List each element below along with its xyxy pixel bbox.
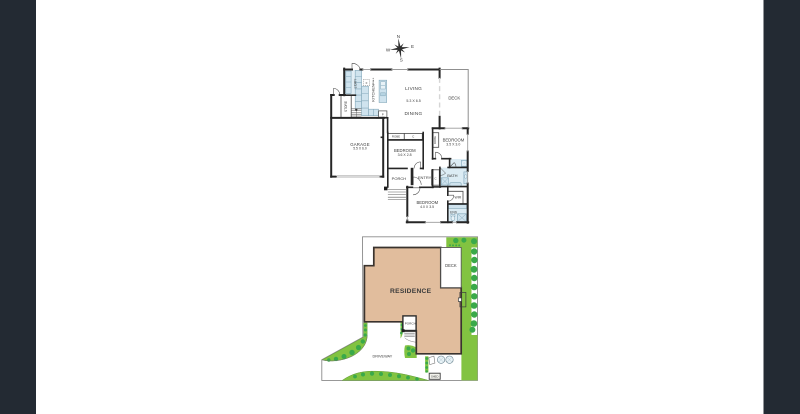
svg-text:WIR: WIR (455, 196, 462, 200)
svg-text:L'DRY: L'DRY (354, 78, 358, 88)
svg-text:PORCH: PORCH (405, 322, 416, 326)
svg-text:ENTRY: ENTRY (418, 175, 432, 180)
svg-text:SHED: SHED (431, 375, 439, 379)
svg-text:BATH: BATH (447, 173, 457, 178)
svg-text:4.0 X 3.5: 4.0 X 3.5 (420, 205, 434, 209)
svg-text:P: P (382, 112, 384, 116)
svg-text:ENS: ENS (450, 211, 458, 215)
svg-text:5.5 X 6.0: 5.5 X 6.0 (353, 147, 367, 151)
svg-text:3.5 X 3.0: 3.5 X 3.0 (446, 142, 460, 146)
svg-text:5.3 X 6.5: 5.3 X 6.5 (406, 99, 420, 103)
svg-text:S: S (400, 57, 403, 62)
svg-text:KITCHEN: KITCHEN (370, 84, 375, 102)
svg-text:DINING: DINING (404, 111, 422, 116)
svg-text:E: E (411, 44, 414, 49)
svg-text:DECK: DECK (445, 263, 457, 268)
svg-text:LIVING: LIVING (405, 86, 422, 91)
svg-text:ROBE: ROBE (433, 136, 437, 144)
svg-text:ROBE: ROBE (392, 135, 400, 139)
svg-text:RESIDENCE: RESIDENCE (390, 288, 432, 295)
svg-text:F: F (366, 81, 368, 85)
svg-text:DRIVEWAY: DRIVEWAY (372, 355, 392, 359)
svg-text:DECK: DECK (448, 95, 460, 100)
svg-text:MEALS: MEALS (372, 77, 375, 85)
svg-text:PORCH: PORCH (392, 176, 407, 181)
svg-text:W: W (386, 48, 391, 53)
svg-text:3.6 X 2.8: 3.6 X 2.8 (398, 153, 412, 157)
svg-text:STORE: STORE (344, 101, 348, 112)
svg-text:N: N (397, 34, 400, 39)
